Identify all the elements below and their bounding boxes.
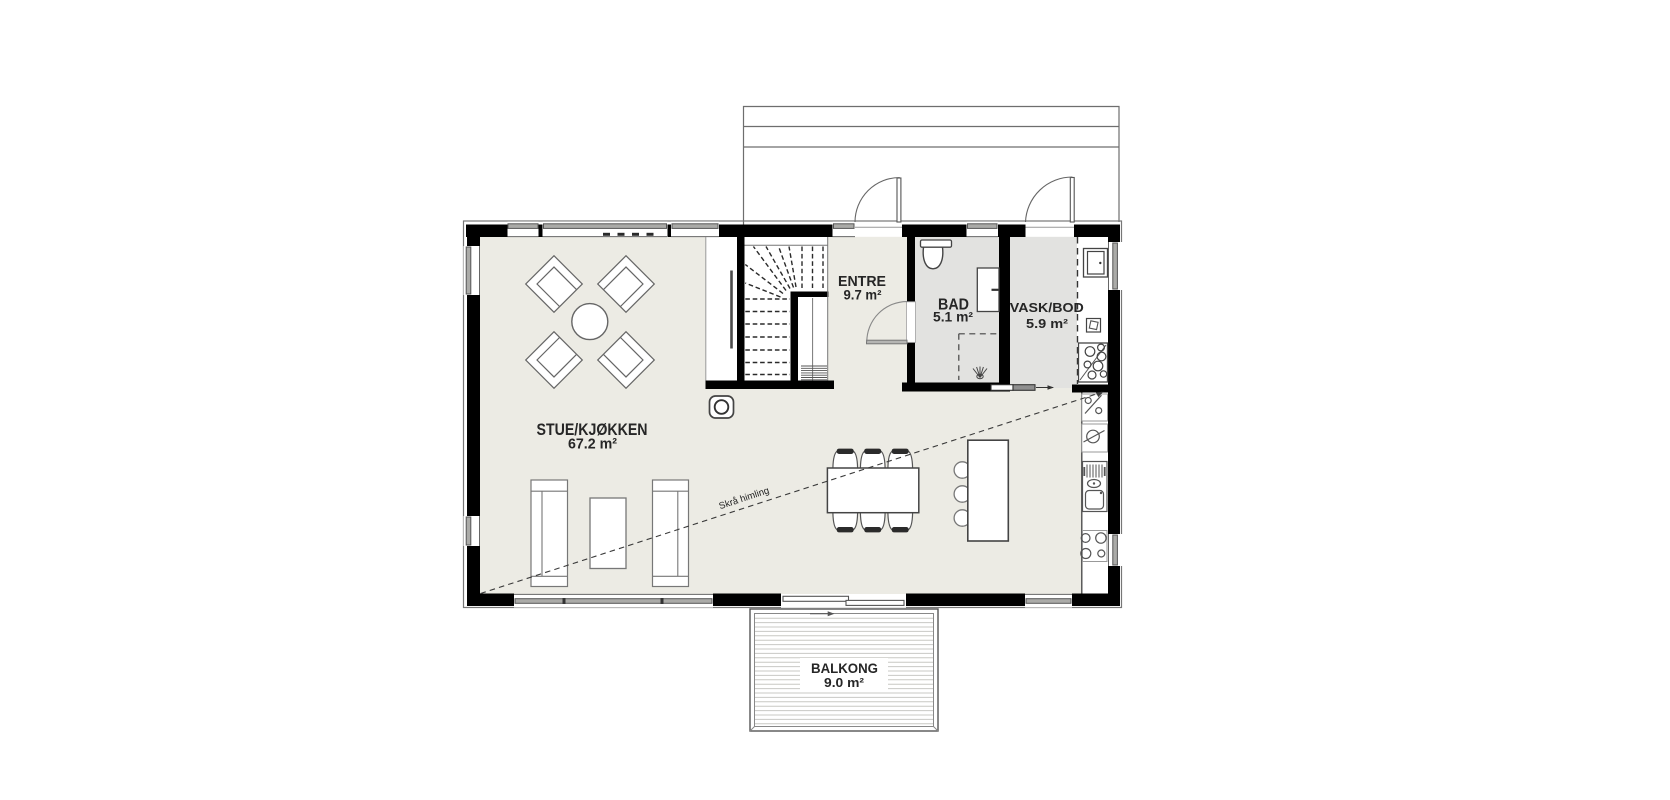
svg-text:VASK/BOD: VASK/BOD — [1010, 300, 1084, 315]
svg-text:67.2 m²: 67.2 m² — [568, 436, 617, 453]
svg-text:9.0 m²: 9.0 m² — [824, 675, 865, 690]
svg-text:9.7 m²: 9.7 m² — [844, 287, 882, 303]
svg-text:BALKONG: BALKONG — [811, 661, 878, 676]
svg-text:5.9 m²: 5.9 m² — [1026, 316, 1069, 331]
svg-text:5.1 m²: 5.1 m² — [933, 309, 973, 325]
